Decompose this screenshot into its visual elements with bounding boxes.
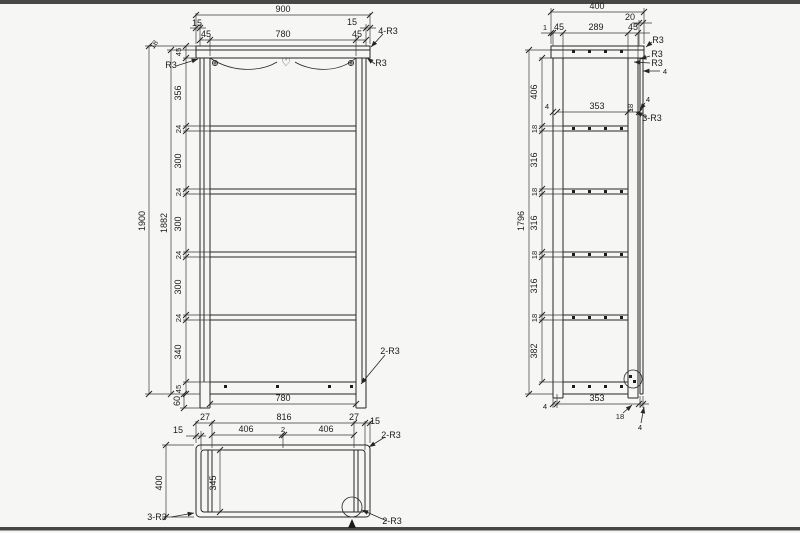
- dim-front-inner-width: 780: [275, 29, 290, 39]
- dim-front-seg-3: 300: [173, 153, 183, 168]
- dim-side-seg-2: 18: [530, 125, 539, 133]
- dim-front-overhang-left: 15: [192, 18, 202, 28]
- dim-plan-corner-left: 27: [200, 412, 210, 422]
- dim-front-inner-height: 1882: [159, 213, 169, 233]
- dim-side-seg-1: 406: [529, 84, 539, 99]
- note-plan-left: 3-R3: [147, 512, 167, 522]
- technical-drawing: ♡ 900 15 45 780 45 15 4-R3 18 45 R3 R3 1…: [0, 0, 800, 533]
- dim-front-seg-8: 24: [174, 314, 183, 322]
- dim-front-seg-9: 340: [173, 344, 183, 359]
- note-side-radius-top: R3: [652, 35, 664, 45]
- note-side-shelf: 3-R3: [642, 113, 662, 123]
- dim-side-seg-6: 18: [530, 251, 539, 259]
- dim-front-overall-width: 900: [275, 4, 290, 14]
- dim-plan-corner-right: 27: [349, 412, 359, 422]
- dim-side-bottom-gap-back: 4: [638, 423, 642, 432]
- dim-front-post-right: 45: [352, 29, 362, 39]
- dim-front-post-left: 45: [201, 29, 211, 39]
- dim-side-back-gap: 1: [543, 23, 547, 32]
- dim-side-back-post: 45: [628, 22, 638, 32]
- dim-side-panel-thickness: 4: [663, 67, 667, 76]
- dim-front-seg-6: 24: [174, 251, 183, 259]
- dim-side-seg-9: 382: [529, 343, 539, 358]
- heart-motif: ♡: [281, 57, 291, 69]
- dim-front-seg-2: 24: [174, 125, 183, 133]
- dim-side-shelf-thickness: 18: [626, 104, 635, 112]
- dim-plan-bay-left: 406: [238, 424, 253, 434]
- note-side-radius-b: R3: [651, 58, 663, 68]
- dim-plan-edge-left: 15: [173, 425, 183, 435]
- dim-plan-inner-width: 816: [276, 412, 291, 422]
- note-front-radius-right: R3: [375, 58, 387, 68]
- dim-side-top-inner-depth: 289: [588, 22, 603, 32]
- dim-front-foot-height: 60: [172, 396, 182, 406]
- dim-side-top-overhang: 20: [625, 12, 635, 22]
- paper-background: [0, 0, 800, 533]
- dim-side-overall-height: 1796: [516, 211, 526, 231]
- dim-side-seg-4: 18: [530, 188, 539, 196]
- dim-side-front-post: 45: [554, 22, 564, 32]
- note-plan-top: 2-R3: [381, 430, 401, 440]
- bottom-border-band: [0, 527, 800, 531]
- dim-plan-bay-right: 406: [318, 424, 333, 434]
- note-front-bottom: 2-R3: [380, 346, 400, 356]
- dim-front-overhang-right: 15: [347, 17, 357, 27]
- dim-side-bottom-back: 18: [616, 412, 624, 421]
- dim-front-seg-4: 24: [174, 188, 183, 196]
- dim-front-seg-7: 300: [173, 279, 183, 294]
- dim-side-seg-8: 18: [530, 314, 539, 322]
- dim-side-shelf-gap-back: 4: [646, 95, 650, 104]
- dim-side-bottom-gap-front: 4: [543, 402, 547, 411]
- note-front-radius-left: R3: [165, 60, 177, 70]
- top-border-band: [0, 0, 800, 4]
- dim-plan-panel-length: 345: [208, 475, 218, 490]
- drawing-stage: ♡ 900 15 45 780 45 15 4-R3 18 45 R3 R3 1…: [0, 0, 800, 533]
- dim-side-seg-3: 316: [529, 152, 539, 167]
- dim-front-seg-5: 300: [173, 216, 183, 231]
- dim-side-bottom-depth: 353: [589, 393, 604, 403]
- dim-plan-edge-right: 15: [370, 416, 380, 426]
- dim-front-bottom-inner: 780: [275, 393, 290, 403]
- dim-plan-overall-depth: 400: [154, 475, 164, 490]
- dim-plan-center-gap: 2: [281, 425, 285, 434]
- dim-side-shelf-gap-front: 4: [545, 102, 549, 111]
- dim-front-seg-10: 45: [174, 385, 183, 393]
- dim-side-seg-7: 316: [529, 278, 539, 293]
- dim-front-rail-height: 45: [174, 48, 183, 56]
- dim-front-overall-height: 1900: [137, 211, 147, 231]
- dim-side-overall-depth: 400: [589, 1, 604, 11]
- dim-side-shelf-depth: 353: [589, 101, 604, 111]
- dim-side-seg-5: 316: [529, 215, 539, 230]
- note-front-corner: 4-R3: [378, 26, 398, 36]
- dim-front-seg-1: 356: [173, 85, 183, 100]
- note-plan-bottom: 2-R3: [382, 516, 402, 526]
